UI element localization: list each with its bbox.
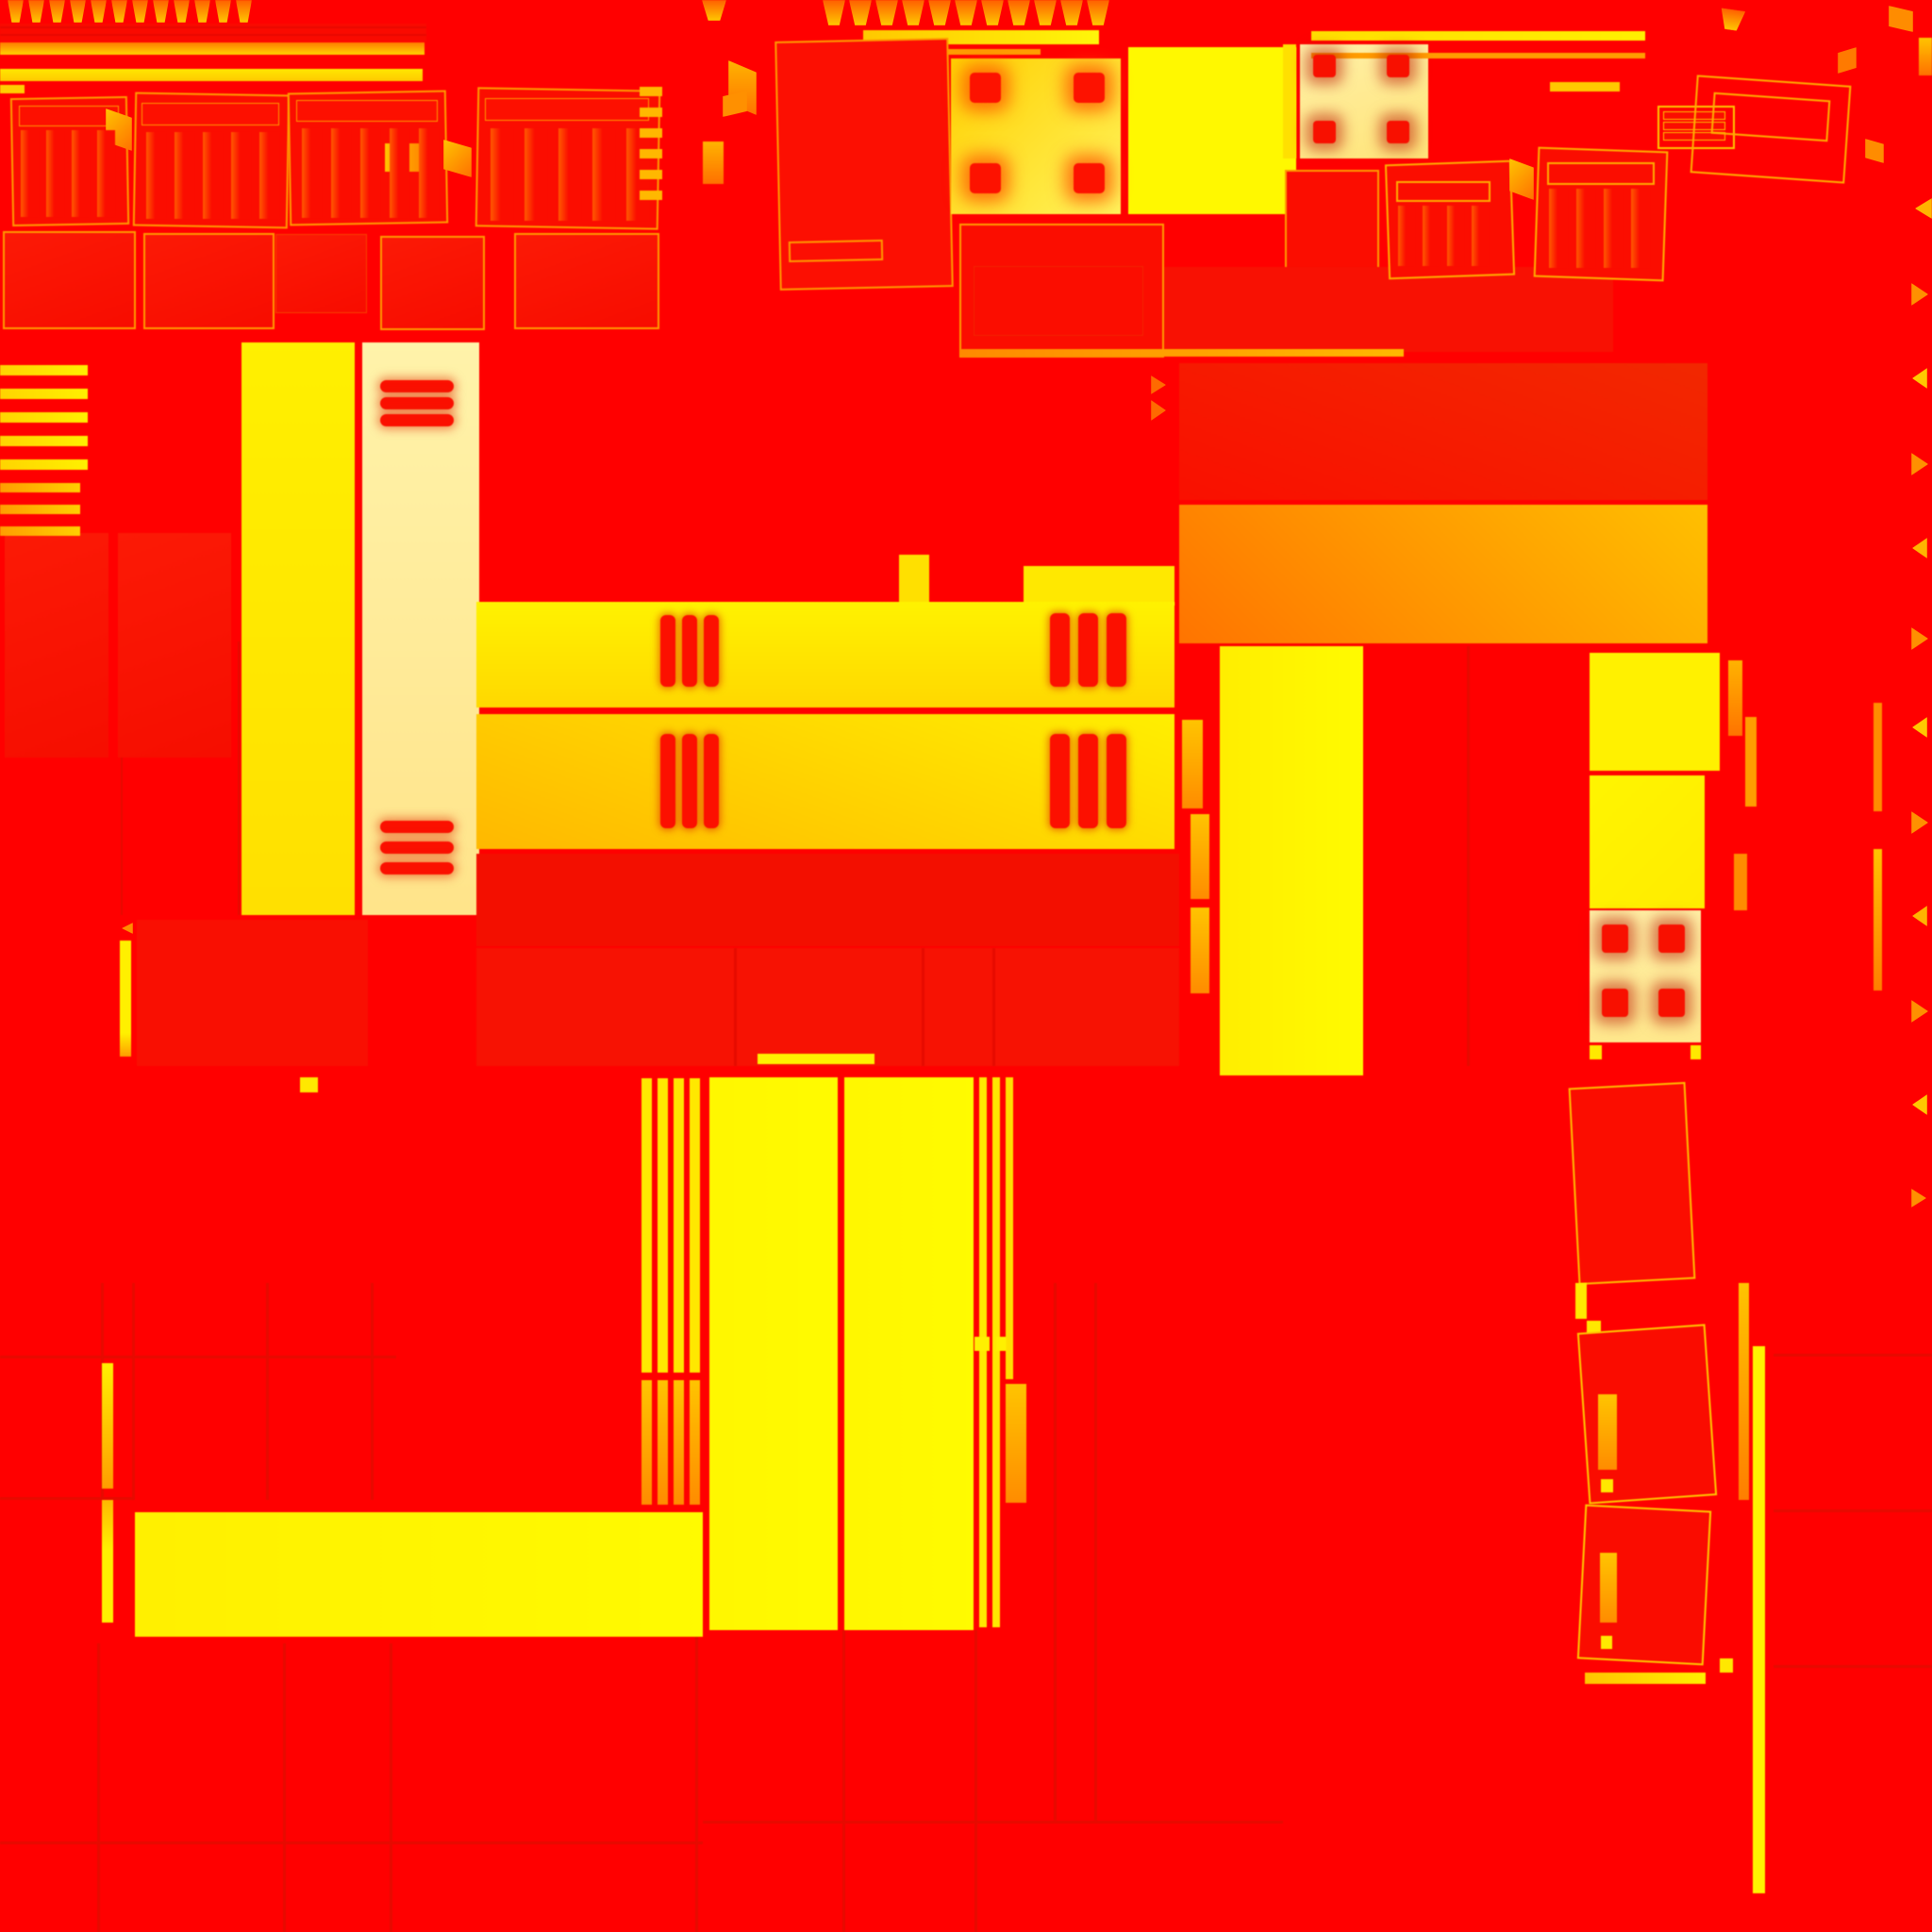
- door-strip-3: [1006, 1077, 1013, 1379]
- mid-yellow-strip: [120, 941, 131, 1057]
- orange-underline: [960, 349, 1404, 357]
- amber-band: [1179, 505, 1707, 643]
- seam-v-8: [695, 1630, 698, 1932]
- big-quad-inner: [789, 240, 883, 262]
- teeth-row-b-8: [1034, 0, 1057, 25]
- door-sq-2: [996, 1337, 1007, 1351]
- edge-tri-9: [1911, 1000, 1928, 1023]
- door-sq-1: [974, 1337, 990, 1351]
- ysquare-small: [1720, 1658, 1733, 1673]
- dark-band-1: [476, 854, 1179, 946]
- seam-h-1: [0, 1356, 396, 1358]
- quad-underline: [1585, 1673, 1706, 1684]
- door-strip-1: [979, 1077, 987, 1627]
- teeth-row-a-3: [70, 0, 86, 23]
- teeth-row-b-3: [902, 0, 924, 25]
- box-row-4: [380, 236, 485, 330]
- crate-c-slats-2: [360, 128, 380, 218]
- crate-c-slats-4: [419, 128, 439, 218]
- crate-d-slats-0: [491, 128, 513, 221]
- seam-v-17: [734, 948, 737, 1066]
- mini-blinds-5: [640, 191, 662, 200]
- crate-d-lid: [485, 98, 649, 121]
- amber-strip-2: [1191, 814, 1209, 899]
- teeth-row-b-9: [1060, 0, 1083, 25]
- yline-bright: [1753, 1346, 1765, 1893]
- bit-1: [1590, 1045, 1602, 1059]
- mini-blinds-4: [640, 170, 662, 179]
- right-frag-1: [1728, 660, 1742, 736]
- seam-h-4: [703, 1821, 1283, 1824]
- keys-b-right-0: [1050, 734, 1070, 828]
- door-strip-orange: [1006, 1384, 1026, 1503]
- seam-h-6: [1774, 1509, 1932, 1512]
- comb-stripes-top-2: [0, 412, 88, 423]
- tilted-quad-3: [1577, 1505, 1711, 1666]
- teeth-row-a-5: [111, 0, 127, 23]
- edge-tri-6: [1912, 717, 1927, 738]
- teeth-row-a-1: [28, 0, 44, 23]
- door-strip-2: [992, 1077, 1000, 1627]
- top-dash: [0, 85, 25, 93]
- door-a: [709, 1077, 838, 1630]
- card-1: [5, 533, 108, 758]
- keys-a-left-1: [682, 615, 697, 687]
- teeth-row-a-11: [236, 0, 252, 23]
- comb-stripes-bottom-0: [0, 483, 80, 492]
- dice-c-pips-2: [1602, 989, 1628, 1017]
- arrow-tri-2: [1151, 400, 1166, 421]
- mid-panel: [137, 920, 368, 1066]
- crate-b-slats-0: [146, 132, 166, 219]
- teeth-row-a-7: [153, 0, 169, 23]
- yellow-column: [1220, 646, 1363, 1075]
- tilted-quad-1: [1569, 1082, 1696, 1285]
- dice-c-pips-3: [1658, 989, 1685, 1017]
- teeth-row-b-10: [1087, 0, 1109, 25]
- edge-tri-5: [1911, 627, 1928, 650]
- seam-v-2: [132, 1283, 135, 1500]
- keys-b-left-2: [704, 734, 719, 828]
- door-comb-upper-1: [658, 1078, 668, 1373]
- top-stripe-2: [0, 69, 423, 81]
- comb-stripes-top-3: [0, 436, 88, 446]
- burger-bottom-1: [380, 841, 454, 854]
- door-comb-lower-3: [690, 1380, 700, 1505]
- arrow-tri-1: [1151, 375, 1166, 394]
- red-band-2: [1179, 363, 1707, 500]
- left-strip-upper: [102, 1363, 113, 1489]
- crate-f-slats-1: [1576, 189, 1595, 268]
- dice-c-pips-1: [1658, 924, 1685, 953]
- comb-stripes-top-4: [0, 459, 88, 470]
- plain-yellow-panel: [1128, 47, 1296, 214]
- seam-v-6: [283, 1643, 286, 1932]
- door-comb-upper-0: [641, 1078, 652, 1373]
- red-band-1: [1160, 267, 1613, 352]
- amber-strip-1: [1182, 720, 1203, 808]
- box-row-5: [514, 233, 659, 329]
- seam-v-19: [992, 948, 995, 1066]
- dice-b-pips-0: [1313, 55, 1336, 77]
- quad3-pip: [1601, 1636, 1612, 1649]
- teeth-row-b-6: [981, 0, 1004, 25]
- seam-v-18: [922, 948, 924, 1066]
- dice-a-pips-0: [970, 73, 1001, 103]
- crate-a-slats-0: [21, 130, 39, 217]
- column-bright: [241, 342, 355, 915]
- comb-stripes-bottom-1: [0, 505, 80, 514]
- topright-line-3: [1550, 82, 1620, 92]
- tilted-outline-inner: [1711, 92, 1831, 142]
- teeth-row-a-8: [174, 0, 190, 23]
- teeth-row-b-4: [928, 0, 951, 25]
- frag-corner-3: [1838, 47, 1857, 74]
- mini-blinds-2: [640, 128, 662, 138]
- keys-a-right-2: [1107, 613, 1126, 687]
- crate-a-slats-3: [97, 130, 115, 217]
- dice-c-pips-0: [1602, 924, 1628, 953]
- edge-tri-1: [1911, 283, 1928, 306]
- seam-h-3: [0, 1841, 703, 1844]
- teeth-row-a-6: [132, 0, 148, 23]
- crate-d-slats-3: [592, 128, 615, 221]
- keys-a-left-2: [704, 615, 719, 687]
- crate-f-slats-2: [1604, 189, 1623, 268]
- seam-v-11: [1054, 1283, 1057, 1821]
- tooth-lone: [702, 0, 726, 21]
- strip-1360: [1283, 44, 1296, 158]
- seam-v-9: [842, 1630, 845, 1932]
- box-row-2: [143, 233, 275, 329]
- keys-b-left-0: [660, 734, 675, 828]
- crate-e-lid: [1396, 181, 1491, 202]
- bit-2: [1690, 1045, 1701, 1059]
- teeth-row-b-2: [875, 0, 898, 25]
- left-strip-lower: [102, 1500, 113, 1623]
- piano-bar-b: [476, 714, 1174, 849]
- dice-a-pips-1: [1074, 73, 1105, 103]
- crate-d-slats-1: [525, 128, 547, 221]
- mini-blinds-1: [640, 108, 662, 117]
- teeth-row-a-0: [8, 0, 24, 23]
- quad2-bar: [1598, 1394, 1617, 1470]
- crate-e-slats-2: [1447, 206, 1464, 266]
- mid-ysquare: [300, 1077, 318, 1092]
- box-row-3: [275, 234, 367, 313]
- frag-corner-4: [1865, 139, 1884, 163]
- keys-a-right-1: [1078, 613, 1098, 687]
- top-hairline-2: [0, 34, 426, 36]
- crate-c-slats-0: [302, 128, 322, 218]
- right-frag-2: [1745, 717, 1757, 807]
- edge-strip-2: [1874, 849, 1882, 991]
- frag-corner-2: [1919, 38, 1932, 75]
- mid-strip-tri: [122, 923, 133, 934]
- seam-v-5: [97, 1643, 100, 1932]
- keys-b-right-1: [1078, 734, 1098, 828]
- teeth-row-a-2: [49, 0, 65, 23]
- burger-top-2: [380, 414, 454, 426]
- crate-b-slats-3: [231, 132, 251, 219]
- burger-top-0: [380, 380, 454, 392]
- crate-a-slats-2: [72, 130, 90, 217]
- crate-b-slats-4: [259, 132, 279, 219]
- mini-blinds-0: [640, 87, 662, 96]
- edge-tri-3: [1911, 453, 1928, 475]
- crate-c-slats-1: [331, 128, 351, 218]
- teeth-row-b-1: [849, 0, 872, 25]
- comb-stripes-top-1: [0, 389, 88, 399]
- mini-blinds-3: [640, 149, 662, 158]
- bar-a-tab: [899, 555, 929, 604]
- topright-line-2: [1311, 53, 1645, 58]
- outlined-square: [1285, 170, 1379, 275]
- crate-a-slats-1: [46, 130, 64, 217]
- teeth-row-b-7: [1008, 0, 1030, 25]
- dice-b-pips-3: [1387, 121, 1409, 143]
- crate-f-slats-0: [1549, 189, 1568, 268]
- frag-tooth-tr: [1719, 8, 1746, 31]
- crate-f-lid: [1547, 162, 1655, 185]
- top-stripe-1: [0, 42, 425, 55]
- edge-tri-10: [1912, 1094, 1927, 1115]
- edge-tri-2: [1912, 368, 1927, 389]
- crate-b-slats-1: [175, 132, 194, 219]
- dice-a-pips-2: [970, 163, 1001, 193]
- edge-tri-7: [1911, 811, 1928, 834]
- yline-orange: [1739, 1283, 1749, 1500]
- edge-strip-1: [1874, 703, 1882, 811]
- crate-a-lid: [19, 106, 119, 126]
- door-comb-upper-3: [690, 1078, 700, 1373]
- frag-corner-1: [1889, 6, 1913, 32]
- seam-v-16: [238, 641, 240, 915]
- door-comb-lower-2: [674, 1380, 684, 1505]
- teeth-row-b-5: [955, 0, 977, 25]
- card-2: [118, 533, 231, 758]
- burger-bottom-2: [380, 862, 454, 874]
- seam-v-12: [1094, 1283, 1097, 1821]
- edge-tri-11: [1911, 1189, 1926, 1207]
- texture-atlas-canvas: [0, 0, 1932, 1932]
- seam-v-3: [266, 1283, 269, 1500]
- keys-b-right-2: [1107, 734, 1126, 828]
- box-row-1: [3, 231, 136, 329]
- comb-stripes-bottom-2: [0, 526, 80, 536]
- keys-a-right-0: [1050, 613, 1070, 687]
- dice-a-pips-3: [1074, 163, 1105, 193]
- door-comb-lower-0: [641, 1380, 652, 1505]
- teeth-row-a-9: [194, 0, 210, 23]
- crate-c-slats-3: [390, 128, 409, 218]
- edge-tri-4: [1912, 538, 1927, 558]
- frag-2: [723, 91, 747, 117]
- door-b: [844, 1077, 974, 1630]
- crate-e-slats-1: [1423, 206, 1440, 266]
- right-square-a: [1590, 653, 1720, 771]
- crate-b-lid: [142, 103, 279, 125]
- crate-e-slats-3: [1472, 206, 1489, 266]
- quad-strip: [1575, 1283, 1587, 1319]
- bar-a-rise: [1024, 566, 1174, 606]
- frag-corner-5: [1915, 198, 1932, 219]
- crate-e-slats-0: [1398, 206, 1415, 266]
- yellow-slab: [135, 1512, 703, 1637]
- crate-d-slats-2: [558, 128, 581, 221]
- burger-bottom-0: [380, 821, 454, 833]
- right-frag-3: [1734, 854, 1747, 910]
- crate-f-slats-3: [1631, 189, 1650, 268]
- seam-v-10: [974, 1630, 977, 1932]
- wedge-e: [1509, 158, 1534, 200]
- crate-b-slats-2: [203, 132, 223, 219]
- dice-b-pips-2: [1313, 121, 1336, 143]
- wedge-d: [443, 140, 472, 177]
- seam-h-5: [1774, 1354, 1932, 1357]
- piano-bar-a: [476, 602, 1174, 708]
- seam-v-7: [390, 1643, 392, 1932]
- seam-v-4: [371, 1283, 374, 1500]
- keys-b-left-1: [682, 734, 697, 828]
- teeth-row-a-10: [215, 0, 231, 23]
- teeth-row-b-0: [823, 0, 845, 25]
- quad3-bar: [1600, 1553, 1617, 1623]
- edge-tri-8: [1912, 906, 1927, 926]
- topright-line-1: [1311, 31, 1645, 41]
- comb-stripes-top-0: [0, 365, 88, 375]
- seam-h-2: [0, 1497, 134, 1500]
- seam-v-14: [1467, 646, 1470, 1066]
- keys-a-left-0: [660, 615, 675, 687]
- seam-h-7: [1774, 1665, 1932, 1668]
- frag-3: [703, 142, 724, 184]
- bordered-box-inner: [974, 266, 1143, 336]
- amber-strip-3: [1191, 908, 1209, 993]
- crate-c-lid: [296, 100, 438, 122]
- dark-band-2: [476, 948, 1179, 1066]
- right-square-b: [1590, 775, 1705, 908]
- door-comb-upper-2: [674, 1078, 684, 1373]
- door-comb-lower-1: [658, 1380, 668, 1505]
- teeth-row-a-4: [91, 0, 107, 23]
- quad2-pip: [1601, 1479, 1613, 1492]
- top-hairline-1: [0, 26, 426, 28]
- door-underline: [758, 1054, 874, 1064]
- burger-top-1: [380, 397, 454, 409]
- dice-b-pips-1: [1387, 55, 1409, 77]
